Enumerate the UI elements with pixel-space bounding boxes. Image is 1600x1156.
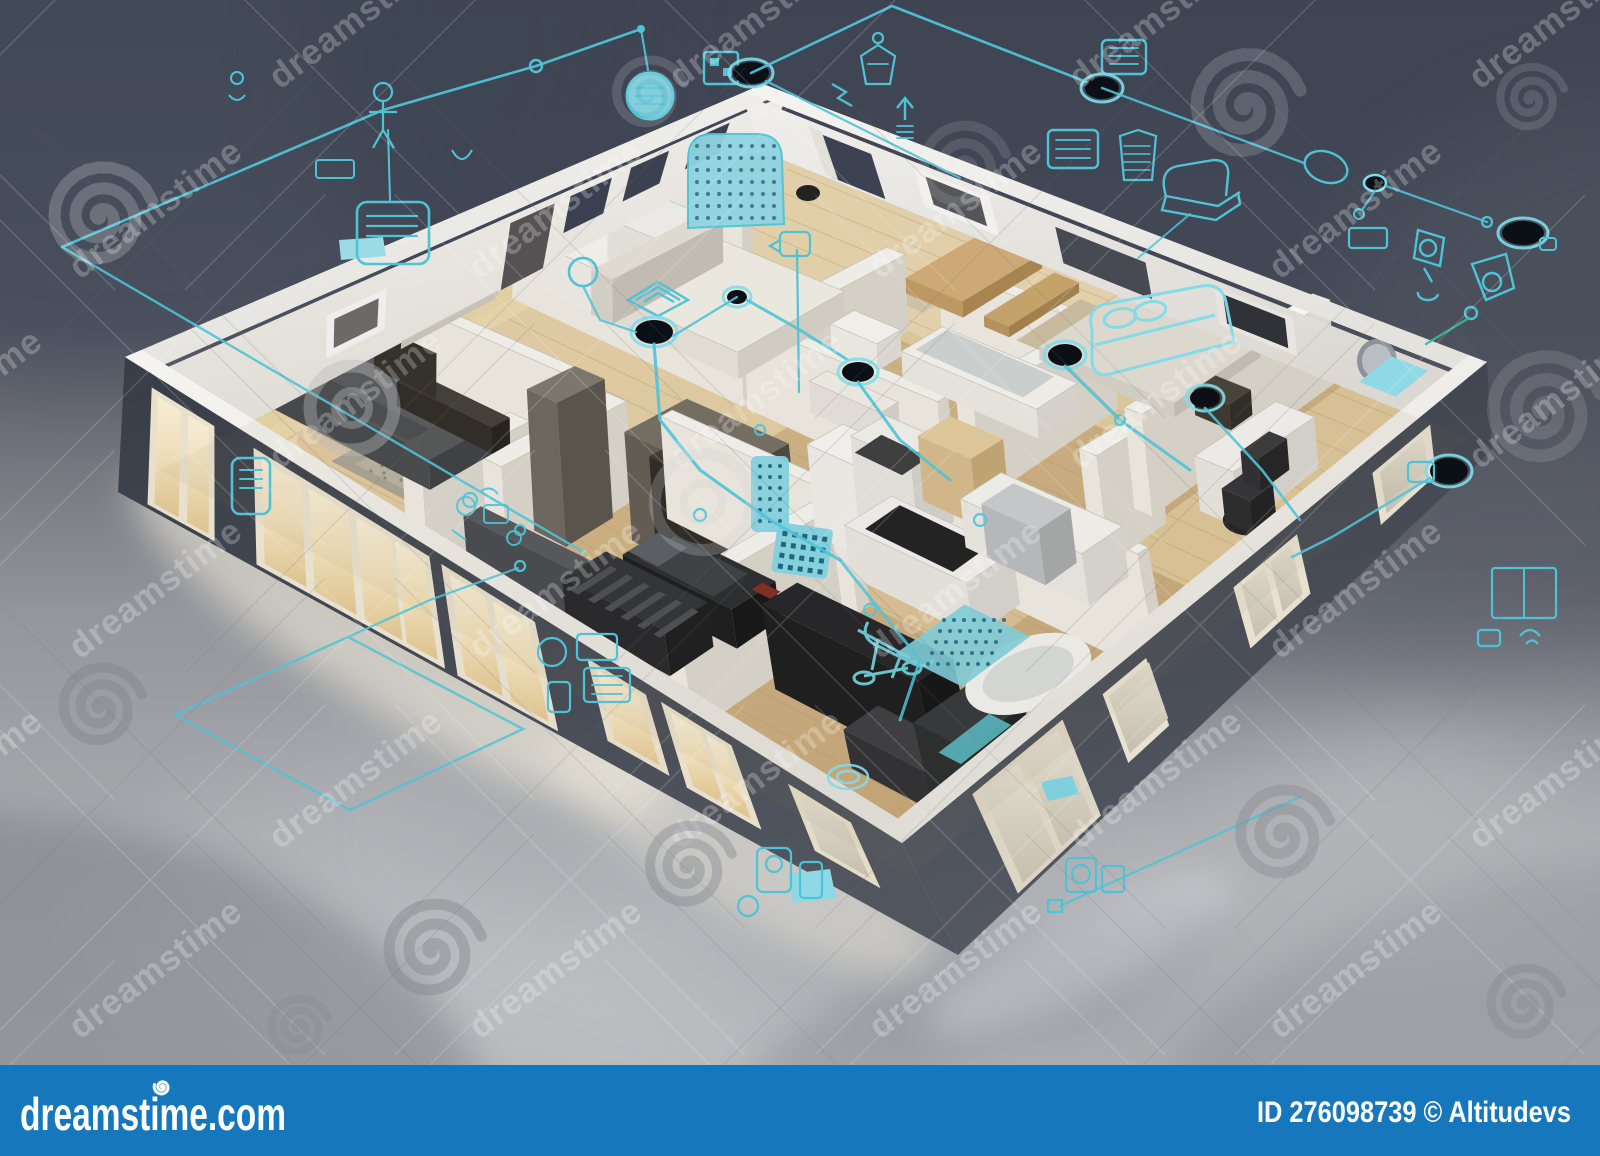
svg-text:ID 276098739 © Altitudevs: ID 276098739 © Altitudevs	[1257, 1096, 1571, 1129]
svg-text:dreamstime.com: dreamstime.com	[20, 1088, 286, 1140]
